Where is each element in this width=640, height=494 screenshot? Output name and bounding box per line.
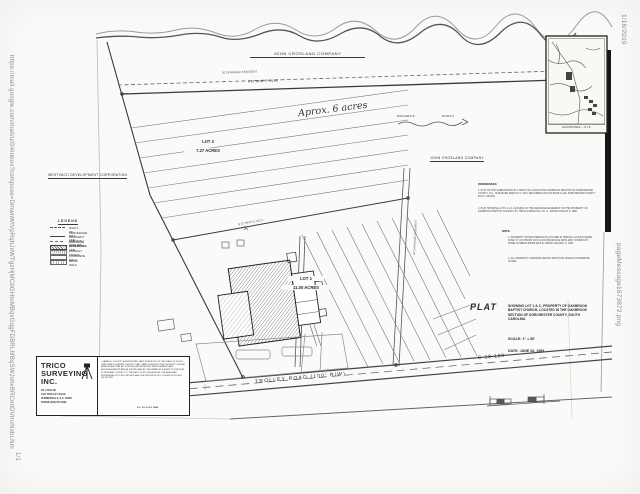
- surveyor-certification: I, JAMES E. COLLETT, A REGISTERED LAND S…: [101, 361, 185, 380]
- magnetic-north-label-right: NORTH: [442, 115, 454, 119]
- reference-item: 2. PLAT SHOWING LOTS 1 & 2, CLOSING OF T…: [478, 207, 596, 213]
- references-title: REFERENCES:: [478, 183, 497, 186]
- torn-paper-edge: [96, 12, 612, 46]
- neighbor-label-left: WESTVACO DEVELOPMENT CORPORATION: [48, 174, 127, 179]
- graphic-scale-bar: [487, 394, 560, 406]
- notes-title: NOTE:: [502, 230, 510, 233]
- title-block-divider: [97, 357, 98, 415]
- lot1-name: LOT 1: [288, 276, 324, 281]
- location-map-label: LOCATION MAP — N.T.S.: [548, 126, 605, 129]
- north-arrow-icon: [398, 119, 468, 126]
- title-block-date: DATE: JUNE 26, 1989: [508, 349, 544, 353]
- lot1-area: 11.00 ACRES: [282, 285, 330, 290]
- surveyor-license: S.C. R.L.S. NO. 3845: [137, 407, 158, 410]
- print-date: 1/16/2019: [619, 14, 627, 45]
- church-building: [213, 249, 330, 359]
- title-block-label: PLAT: [470, 302, 497, 313]
- title-block-scale: SCALE: 1" = 50': [508, 337, 535, 341]
- print-page-indicator: 1/1: [13, 452, 20, 461]
- neighbor-label-right: JOHN CROSLAND COMPANY: [430, 157, 484, 162]
- legend-title: LEGEND: [58, 219, 78, 225]
- print-file-name: pageMessage1673872.png: [614, 243, 622, 326]
- firm-name-line3: INC.: [41, 377, 57, 386]
- reference-item: 1. PLAT OF THE SUBDIVISION OF A TRACT OF…: [478, 189, 596, 198]
- note-item: 2. ALL PROPERTY CORNERS ARE 5/8" IRON PI…: [508, 257, 596, 263]
- surveyor-title-block: TRICO SURVEYING INC. RT. 2 BOX 99 OLD TR…: [36, 356, 190, 416]
- lot2-area: 7.27 ACRES: [184, 148, 232, 153]
- sheet-bottom-edge: [230, 397, 612, 419]
- iron-pins: [121, 79, 560, 379]
- print-url: https://mail.google.com/mail/u/0/#inbox?…: [7, 55, 14, 449]
- location-map-inset: [546, 36, 607, 133]
- surveyor-tripod-icon: [79, 363, 95, 381]
- note-item: 1. PROPERTY SHOWN HEREON IS LOCATED IN S…: [508, 236, 596, 245]
- drainage-easement-line-top: [118, 71, 556, 85]
- plat-drawing: [0, 0, 640, 494]
- magnetic-north-label-left: MAGNETIC: [397, 115, 415, 119]
- title-block-description: SHOWING LOT 1 & 2., PROPERTY OF OAKBROOK…: [508, 304, 594, 322]
- scanned-plat-page: https://mail.google.com/mail/u/0/#inbox?…: [0, 0, 640, 494]
- firm-address-line: PHONE (803) 873-2696: [41, 402, 67, 405]
- neighbor-label-top: JOHN CROSLAND COMPANY: [250, 52, 365, 58]
- lot2-name: LOT 2: [190, 139, 226, 144]
- drainage-easement-lines: [295, 168, 410, 367]
